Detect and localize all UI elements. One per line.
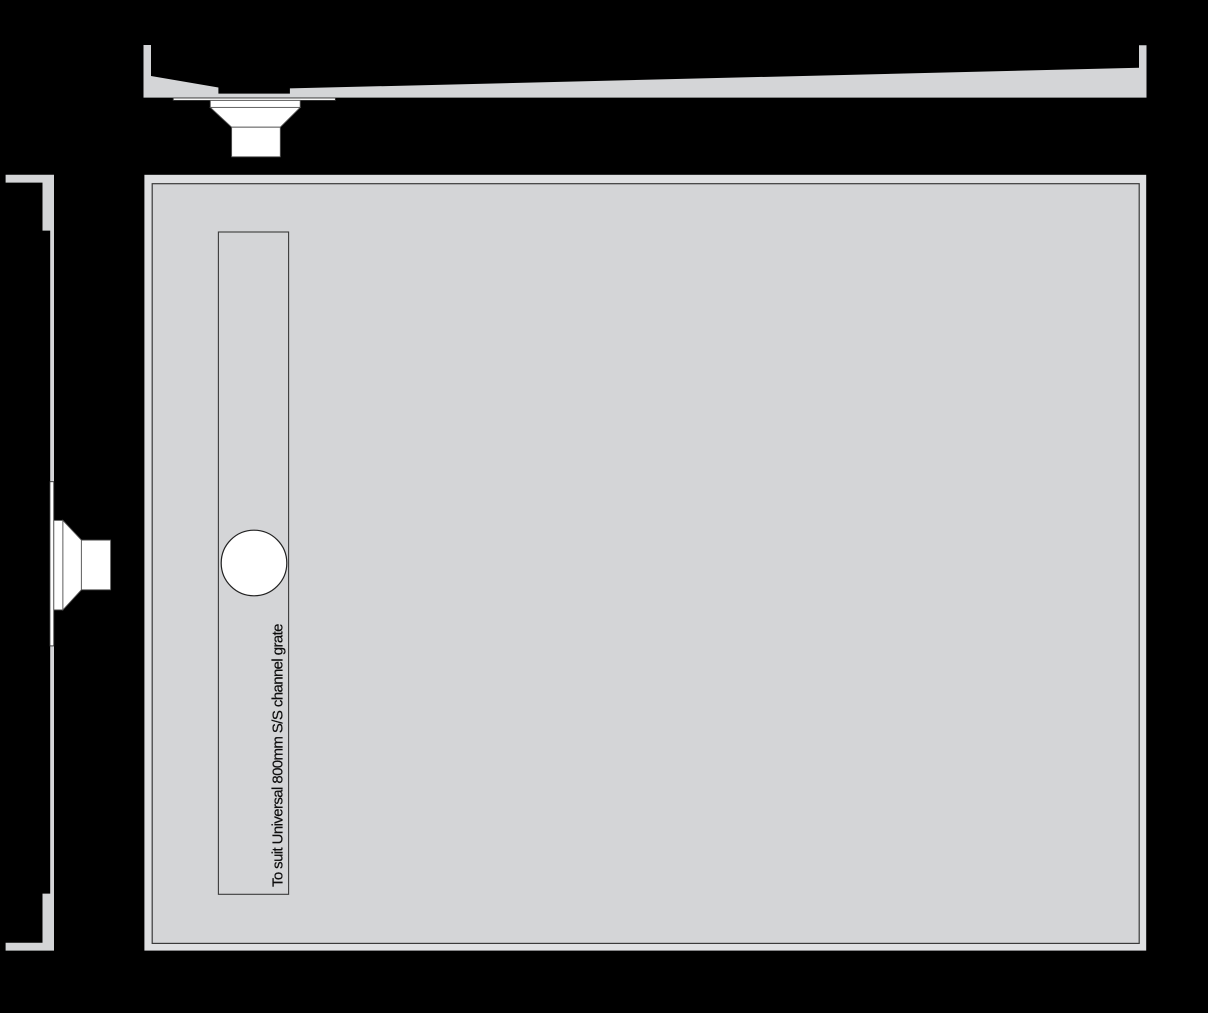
svg-text:To suit Universal 800mm S/S ch: To suit Universal 800mm S/S channel grat…	[269, 624, 286, 888]
